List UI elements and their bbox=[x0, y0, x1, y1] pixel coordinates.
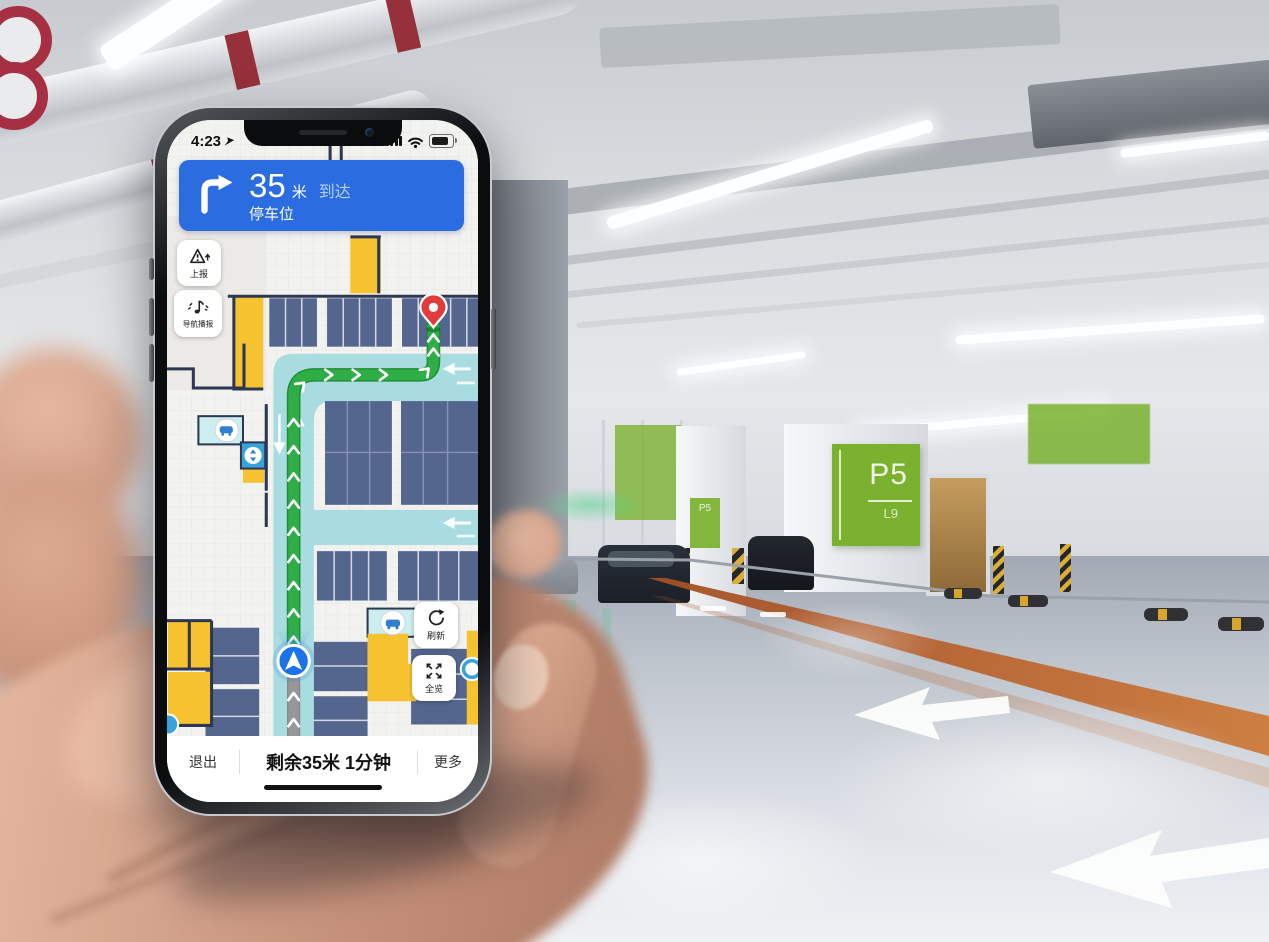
facility-icon-elevator bbox=[241, 442, 265, 468]
turn-right-icon bbox=[193, 172, 239, 219]
distance-value: 35 bbox=[249, 168, 286, 204]
refresh-label: 刷新 bbox=[427, 629, 445, 642]
home-indicator[interactable] bbox=[264, 785, 382, 790]
time-text: 4:23 bbox=[191, 133, 221, 150]
mute-switch bbox=[149, 258, 154, 280]
voice-broadcast-button[interactable]: 导航播报 bbox=[174, 290, 222, 337]
facility-icon-left-edge bbox=[167, 714, 178, 734]
voice-note-icon bbox=[186, 297, 210, 316]
overview-button[interactable]: 全览 bbox=[412, 655, 456, 701]
clock: 4:23 bbox=[191, 133, 235, 150]
destination-label: 停车位 bbox=[249, 207, 351, 224]
report-button[interactable]: 上报 bbox=[177, 240, 221, 286]
phone: 4:23 bbox=[153, 106, 492, 816]
speaker-grille bbox=[299, 130, 347, 135]
power-button bbox=[491, 308, 496, 370]
wifi-icon bbox=[407, 135, 424, 148]
volume-down-button bbox=[149, 344, 154, 382]
expand-arrows-icon bbox=[424, 661, 444, 681]
more-button[interactable]: 更多 bbox=[418, 752, 478, 772]
battery-icon bbox=[429, 134, 454, 148]
report-warning-icon bbox=[188, 246, 210, 266]
voice-broadcast-label: 导航播报 bbox=[183, 318, 214, 329]
refresh-button[interactable]: 刷新 bbox=[414, 602, 458, 648]
location-services-icon bbox=[224, 136, 235, 147]
phone-notch bbox=[244, 120, 402, 146]
facility-icon-right-edge bbox=[461, 658, 478, 680]
arrive-label: 到达 bbox=[319, 184, 351, 202]
volume-up-button bbox=[149, 298, 154, 336]
exit-button[interactable]: 退出 bbox=[167, 752, 239, 772]
phone-screen: 4:23 bbox=[167, 120, 478, 802]
overview-label: 全览 bbox=[425, 682, 443, 695]
distance-unit: 米 bbox=[292, 185, 307, 202]
report-label: 上报 bbox=[190, 267, 208, 280]
route-summary: 剩余35米 1分钟 bbox=[240, 749, 417, 775]
facility-icon-car-area bbox=[381, 611, 405, 635]
banner-text: 35 米 到达 停车位 bbox=[249, 168, 351, 224]
navigation-banner: 35 米 到达 停车位 bbox=[179, 160, 464, 231]
facility-icon-shuttle bbox=[215, 419, 238, 442]
wheel-stoppers bbox=[944, 588, 1264, 631]
bottom-bar: 退出 剩余35米 1分钟 更多 bbox=[167, 736, 478, 802]
front-camera bbox=[365, 128, 374, 137]
scene: ▲ P5 P5 L9 bbox=[0, 0, 1269, 942]
refresh-icon bbox=[426, 608, 446, 628]
